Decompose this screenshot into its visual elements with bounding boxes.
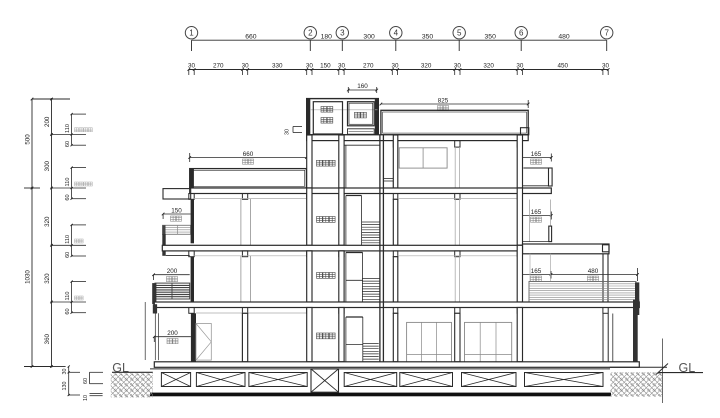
- svg-text:200: 200: [167, 330, 178, 337]
- svg-text:660: 660: [245, 34, 257, 41]
- svg-text:110: 110: [65, 124, 71, 133]
- svg-text:30: 30: [602, 63, 610, 70]
- svg-text:2: 2: [308, 29, 313, 38]
- svg-text:1030: 1030: [25, 270, 32, 284]
- svg-text:270: 270: [213, 63, 224, 70]
- svg-text:165: 165: [531, 151, 542, 158]
- svg-text:1: 1: [189, 29, 194, 38]
- svg-text:GL: GL: [679, 361, 696, 375]
- svg-text:150: 150: [171, 208, 182, 215]
- svg-text:7: 7: [604, 29, 609, 38]
- svg-text:30: 30: [306, 63, 314, 70]
- svg-text:30: 30: [454, 63, 462, 70]
- svg-text:165: 165: [531, 209, 542, 216]
- svg-text:60: 60: [65, 141, 71, 147]
- svg-text:300: 300: [44, 160, 51, 171]
- svg-text:150: 150: [320, 63, 331, 70]
- svg-text:60: 60: [65, 252, 71, 258]
- svg-text:200: 200: [167, 268, 178, 275]
- svg-text:360: 360: [44, 333, 51, 344]
- svg-text:825: 825: [438, 98, 449, 105]
- svg-text:270: 270: [363, 63, 374, 70]
- svg-text:60: 60: [65, 308, 71, 314]
- svg-text:110: 110: [65, 235, 71, 244]
- svg-text:30: 30: [188, 63, 196, 70]
- svg-text:160: 160: [357, 83, 368, 90]
- svg-text:GL: GL: [112, 361, 129, 375]
- svg-text:180: 180: [321, 34, 333, 41]
- svg-text:165: 165: [531, 268, 542, 275]
- svg-text:200: 200: [44, 116, 51, 127]
- svg-text:30: 30: [285, 129, 291, 135]
- svg-text:300: 300: [363, 34, 375, 41]
- svg-text:320: 320: [44, 273, 51, 284]
- svg-text:350: 350: [422, 34, 434, 41]
- svg-text:10: 10: [83, 395, 89, 401]
- svg-text:320: 320: [421, 63, 432, 70]
- svg-text:660: 660: [243, 151, 254, 158]
- svg-text:320: 320: [483, 63, 494, 70]
- svg-text:5: 5: [457, 29, 462, 38]
- svg-text:330: 330: [272, 63, 283, 70]
- svg-text:500: 500: [25, 134, 32, 145]
- svg-text:350: 350: [485, 34, 497, 41]
- svg-text:450: 450: [557, 63, 568, 70]
- svg-text:30: 30: [62, 369, 68, 375]
- svg-text:320: 320: [44, 216, 51, 227]
- svg-text:30: 30: [242, 63, 250, 70]
- svg-text:60: 60: [65, 194, 71, 200]
- svg-text:30: 30: [338, 63, 346, 70]
- svg-text:6: 6: [519, 29, 524, 38]
- svg-text:3: 3: [340, 29, 345, 38]
- svg-text:4: 4: [394, 29, 399, 38]
- svg-text:60: 60: [83, 378, 89, 384]
- svg-text:110: 110: [65, 178, 71, 187]
- svg-text:480: 480: [558, 34, 570, 41]
- svg-text:130: 130: [62, 382, 68, 391]
- svg-text:30: 30: [391, 63, 399, 70]
- svg-text:30: 30: [516, 63, 524, 70]
- svg-text:110: 110: [65, 292, 71, 301]
- svg-text:480: 480: [588, 268, 599, 275]
